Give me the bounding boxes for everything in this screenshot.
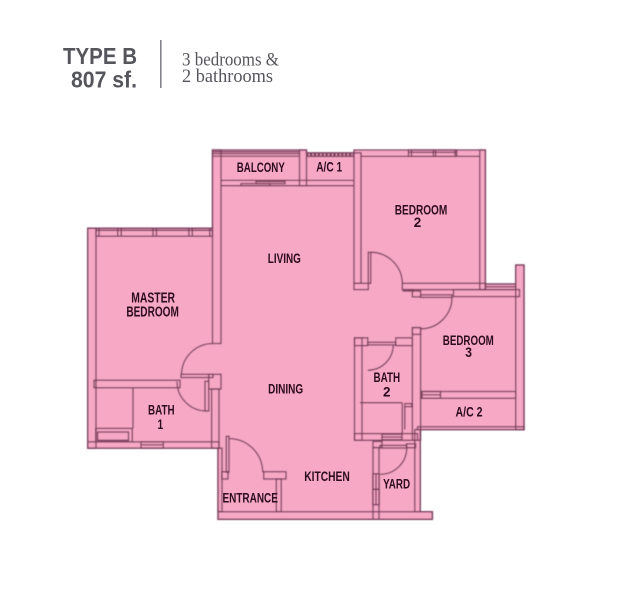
svg-text:3: 3 bbox=[465, 345, 472, 361]
svg-text:2 bathrooms: 2 bathrooms bbox=[182, 67, 273, 87]
svg-text:ENTRANCE: ENTRANCE bbox=[222, 491, 278, 507]
svg-text:LIVING: LIVING bbox=[268, 251, 301, 267]
svg-text:A/C 1: A/C 1 bbox=[316, 159, 342, 175]
svg-text:2: 2 bbox=[383, 384, 391, 400]
svg-text:1: 1 bbox=[158, 417, 164, 433]
svg-text:DINING: DINING bbox=[268, 382, 303, 398]
svg-text:A/C 2: A/C 2 bbox=[456, 404, 483, 420]
svg-text:2: 2 bbox=[414, 215, 422, 231]
svg-text:BEDROOM: BEDROOM bbox=[126, 304, 179, 320]
svg-text:TYPE B: TYPE B bbox=[63, 43, 137, 69]
svg-text:807 sf.: 807 sf. bbox=[71, 67, 137, 93]
svg-text:YARD: YARD bbox=[383, 476, 410, 492]
svg-text:KITCHEN: KITCHEN bbox=[304, 469, 350, 485]
svg-text:BALCONY: BALCONY bbox=[237, 160, 285, 176]
